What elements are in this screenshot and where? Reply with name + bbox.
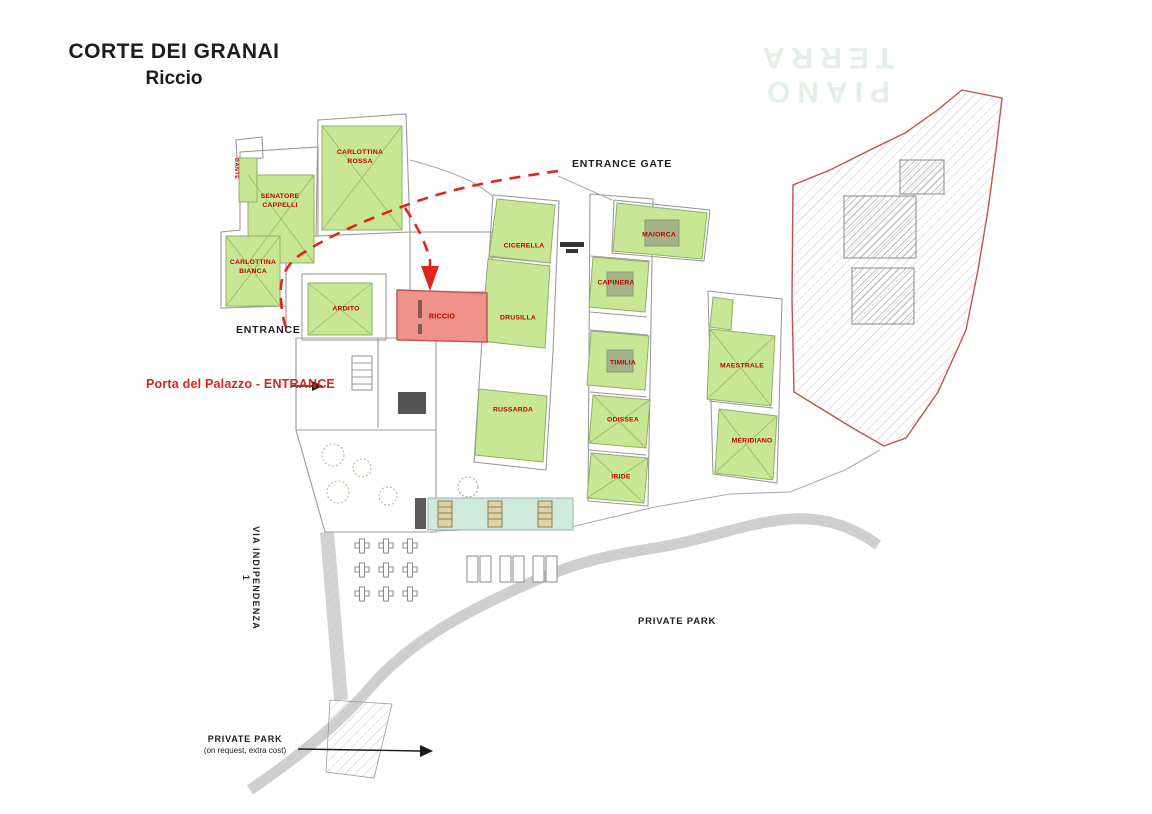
unit-label-timilia: TIMILIA [588, 360, 658, 369]
unit-label-capinera: CAPINERA [581, 280, 651, 289]
building-russarda [475, 389, 547, 462]
unit-label-cicerella: CICERELLA [489, 243, 559, 252]
small-annotation [560, 242, 584, 253]
porta-del-palazzo-label: Porta del Palazzo - ENTRANCE [146, 377, 335, 391]
page-title: CORTE DEI GRANAI [44, 40, 304, 64]
unit-label-meridiano: MERIDIANO [715, 438, 789, 447]
page-subtitle: Riccio [44, 68, 304, 90]
unit-label-iride: IRIDE [586, 474, 656, 483]
unit-label-dante: DANTE [233, 158, 239, 179]
garden-tables [355, 539, 417, 601]
private-park-note-line2: (on request, extra cost) [170, 746, 320, 755]
stair-block [398, 392, 426, 414]
building-maestrale-wing [710, 297, 733, 330]
floor-watermark: PIANO TERRA [690, 40, 960, 108]
ruin-block [852, 268, 914, 324]
unit-label-odissea: ODISSEA [588, 417, 658, 426]
unit-label-riccio: RICCIO [412, 311, 472, 320]
unit-label-maestrale: MAESTRALE [705, 363, 779, 372]
unit-label-drusilla: DRUSILLA [483, 315, 553, 324]
unit-label-maiorca: MAIORCA [624, 232, 694, 241]
unit-label-senatore-cappelli: SENATORE CAPPELLI [252, 193, 308, 211]
private-park-note-line1: PRIVATE PARK [180, 734, 310, 744]
pool [415, 498, 573, 530]
route-arrowhead [421, 266, 439, 291]
private-park-label: PRIVATE PARK [638, 616, 716, 627]
hatched-area-right [792, 90, 1002, 446]
ruin-block [844, 196, 916, 258]
building-cicerella [489, 199, 555, 263]
building-drusilla [481, 259, 550, 348]
ruin-block [900, 160, 944, 194]
street-label-via-indipendenza: VIA INDIPENDENZA 1 [241, 523, 261, 633]
hatched-fan [326, 700, 392, 778]
unit-label-ardito: ARDITO [316, 306, 376, 315]
unit-label-carlottina-bianca: CARLOTTINA BIANCA [225, 259, 281, 277]
entrance-label: ENTRANCE [236, 324, 301, 336]
site-plan-page: CORTE DEI GRANAI Riccio PIANO TERRA CARL… [0, 0, 1152, 814]
sun-loungers [467, 556, 557, 582]
floor-plan-drawing [0, 0, 1152, 814]
entrance-gate-label: ENTRANCE GATE [572, 158, 672, 170]
unit-label-carlottina-rossa: CARLOTTINA ROSSA [330, 149, 390, 167]
unit-label-russarda: RUSSARDA [478, 407, 548, 416]
